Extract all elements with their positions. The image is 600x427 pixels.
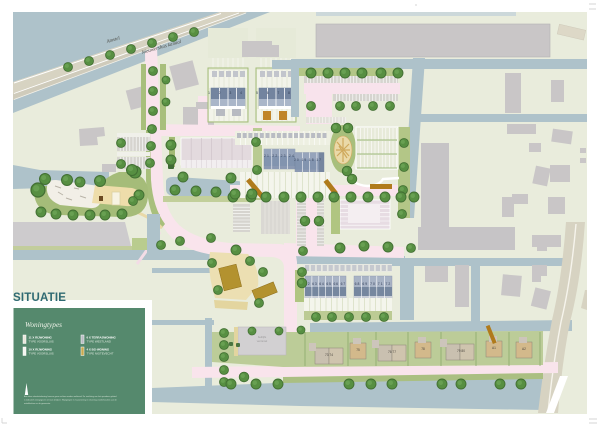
svg-text:bedrijfs: bedrijfs (258, 335, 267, 339)
svg-text:Aan deze situatietekening kunn: Aan deze situatietekening kunnen geen re… (24, 395, 117, 398)
svg-text:62 63 64 65 66 67: 62 63 64 65 66 67 (305, 282, 346, 286)
svg-text:79 80: 79 80 (457, 349, 465, 353)
svg-text:is indicatief weergegeven en k: is indicatief weergegeven en kan afwijke… (24, 399, 118, 402)
svg-text:TYPE VOORSLUIS: TYPE VOORSLUIS (29, 340, 54, 344)
svg-text:Woningtypes: Woningtypes (25, 320, 62, 329)
svg-text:TYPE NIGTEVECHT: TYPE NIGTEVECHT (87, 352, 114, 356)
svg-text:5 6 7 8: 5 6 7 8 (256, 91, 294, 95)
svg-text:76 77: 76 77 (388, 350, 396, 354)
svg-text:75: 75 (356, 348, 360, 352)
svg-text:TYPE VOORSLUIS: TYPE VOORSLUIS (29, 352, 54, 356)
svg-text:ontwikkelaar en de gemeente.: ontwikkelaar en de gemeente. (24, 402, 51, 405)
svg-text:1 2 3 4: 1 2 3 4 (208, 91, 246, 95)
svg-text:78: 78 (421, 347, 425, 351)
svg-text:21 22 23 24: 21 22 23 24 (264, 154, 295, 158)
svg-text:verzamel: verzamel (257, 339, 268, 343)
svg-text:68 69 70 71 72: 68 69 70 71 72 (355, 282, 392, 286)
svg-text:SITUATIE: SITUATIE (13, 292, 66, 304)
svg-text:20 19 18 17: 20 19 18 17 (294, 158, 322, 162)
svg-text:A1: A1 (492, 346, 496, 350)
svg-text:TYPE WESTLAND: TYPE WESTLAND (87, 340, 111, 344)
svg-text:A2: A2 (522, 347, 526, 351)
svg-text:73 74: 73 74 (325, 353, 333, 357)
